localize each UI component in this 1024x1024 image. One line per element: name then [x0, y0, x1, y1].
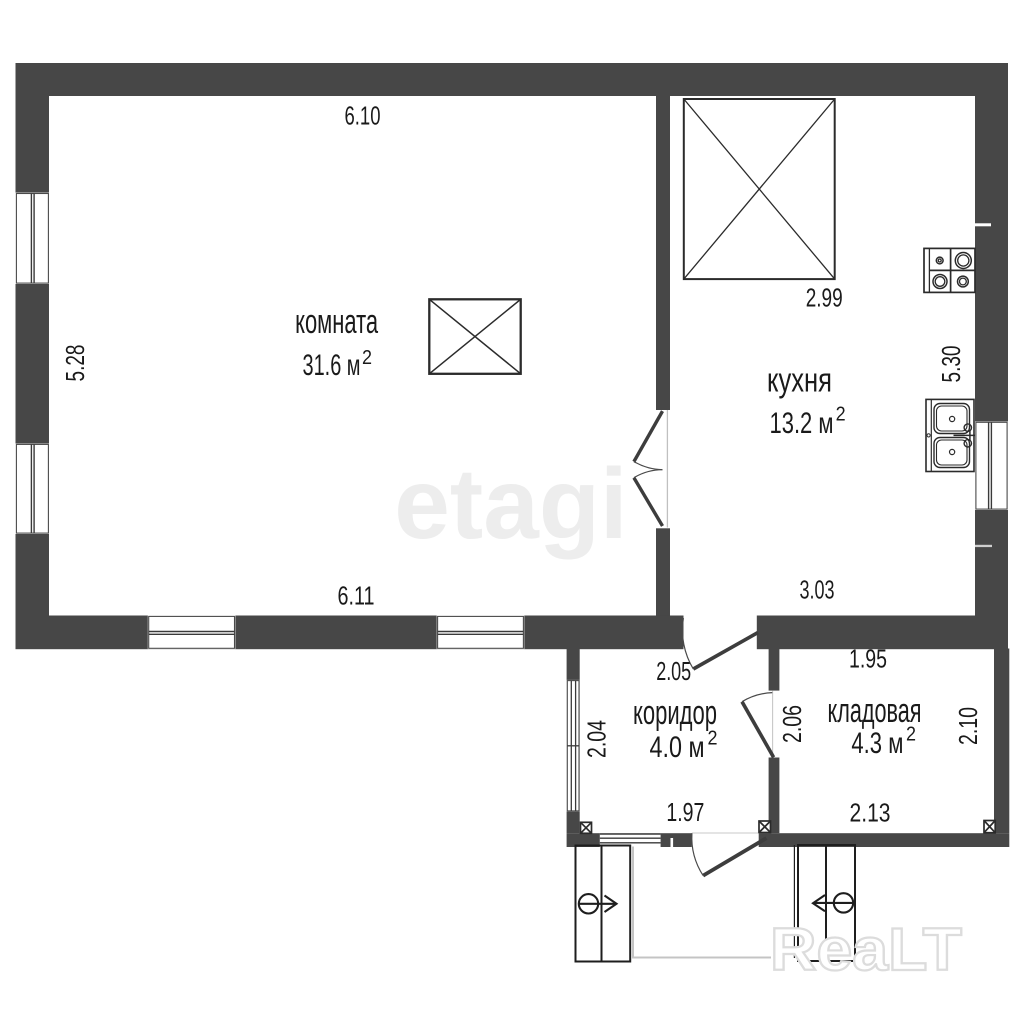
svg-text:коридор: коридор	[633, 694, 717, 732]
svg-text:3.03: 3.03	[800, 577, 835, 605]
svg-text:1.97: 1.97	[666, 799, 704, 827]
svg-text:2.10: 2.10	[955, 707, 983, 745]
svg-text:13.2 м: 13.2 м	[770, 407, 834, 440]
svg-text:6.11: 6.11	[338, 583, 375, 611]
svg-text:4.3 м: 4.3 м	[851, 727, 903, 760]
svg-text:комната: комната	[295, 303, 378, 341]
svg-text:2: 2	[362, 347, 372, 369]
svg-text:etagi: etagi	[394, 448, 627, 560]
svg-text:2.13: 2.13	[850, 800, 891, 828]
svg-text:5.30: 5.30	[938, 346, 966, 383]
svg-text:1.95: 1.95	[849, 646, 887, 674]
svg-text:2: 2	[836, 404, 846, 426]
svg-text:2: 2	[708, 728, 718, 750]
svg-text:5.28: 5.28	[62, 345, 90, 382]
svg-text:6.10: 6.10	[345, 103, 381, 131]
svg-text:31.6 м: 31.6 м	[303, 349, 361, 382]
svg-text:2: 2	[906, 724, 916, 746]
svg-text:2.05: 2.05	[656, 658, 691, 686]
svg-text:2.99: 2.99	[806, 285, 843, 313]
svg-text:ReaLT: ReaLT	[770, 916, 962, 983]
svg-text:2.06: 2.06	[779, 705, 807, 743]
svg-text:кухня: кухня	[767, 362, 832, 400]
svg-text:2.04: 2.04	[584, 720, 612, 758]
svg-text:4.0 м: 4.0 м	[650, 731, 705, 764]
